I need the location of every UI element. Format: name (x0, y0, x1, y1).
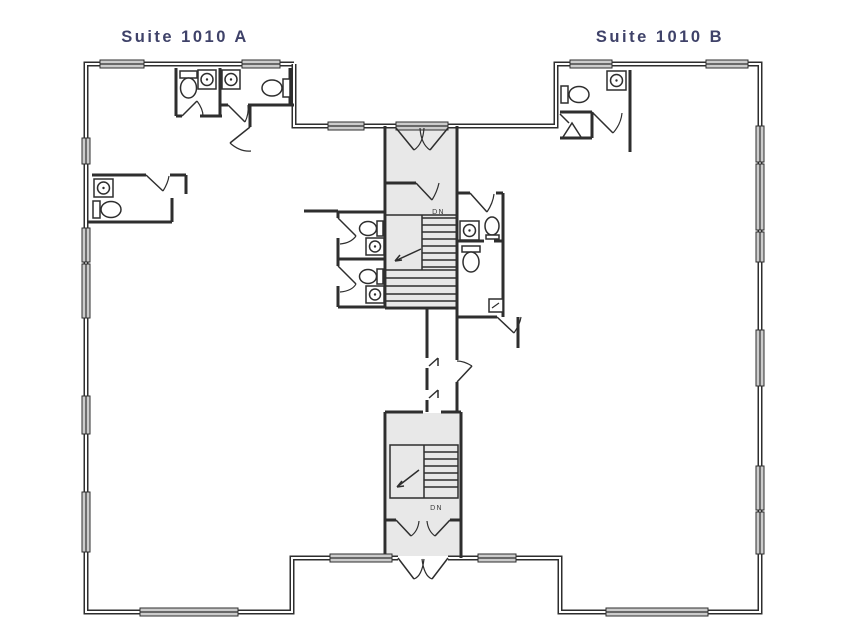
window (756, 466, 764, 510)
toilet-icon (360, 269, 384, 284)
door-swing (338, 218, 356, 244)
window (706, 60, 748, 68)
sink-icon (366, 286, 384, 303)
upper-stair-dn-label: DN (432, 208, 445, 216)
window (82, 138, 90, 164)
suite-a-title: Suite 1010 A (121, 28, 249, 46)
window (756, 512, 764, 554)
toilet-icon (561, 86, 589, 103)
sink-icon (460, 221, 479, 240)
door-swing (338, 266, 356, 292)
sink-icon (222, 70, 240, 89)
toilet-icon (360, 221, 384, 236)
window (478, 554, 516, 562)
window (606, 608, 708, 616)
window (82, 396, 90, 434)
door-swing (228, 105, 248, 122)
drinking-fountain-icon (489, 299, 503, 312)
toilet-icon (180, 71, 197, 98)
fixtures (93, 70, 626, 312)
lower-stair-dn-label: DN (430, 504, 443, 512)
door-swing (182, 101, 203, 116)
door-marker-icon (429, 390, 438, 398)
window (328, 122, 364, 130)
door-swing (470, 193, 494, 212)
window (756, 232, 764, 262)
window (570, 60, 612, 68)
window (756, 330, 764, 386)
entry-transom-window (396, 122, 448, 130)
sink-icon (94, 179, 113, 197)
suite-b-title: Suite 1010 B (596, 28, 724, 46)
door-swing (230, 127, 251, 151)
window (100, 60, 144, 68)
window (140, 608, 238, 616)
closet-bifold-door-icon (560, 114, 581, 137)
door-swing (398, 558, 424, 579)
window (82, 228, 90, 262)
lavatory-icon (485, 217, 499, 239)
sink-icon (366, 238, 384, 255)
sink-icon (198, 70, 216, 89)
sink-icon (607, 71, 626, 90)
floor-plan-page: Suite 1010 A Suite 1010 B DN DN (0, 0, 852, 643)
toilet-icon (262, 79, 290, 97)
door-marker-icon (429, 358, 438, 366)
window (756, 164, 764, 230)
door-swing (592, 112, 622, 133)
door-swing (146, 175, 169, 191)
floor-plan: Suite 1010 A Suite 1010 B DN DN (0, 0, 852, 643)
toilet-icon (462, 246, 480, 272)
window (242, 60, 280, 68)
door-swing (422, 558, 448, 579)
toilet-icon (93, 201, 121, 218)
window (82, 264, 90, 318)
window (756, 126, 764, 162)
interior-walls (88, 68, 630, 558)
door-swing (457, 361, 472, 382)
window (82, 492, 90, 552)
window (330, 554, 392, 562)
